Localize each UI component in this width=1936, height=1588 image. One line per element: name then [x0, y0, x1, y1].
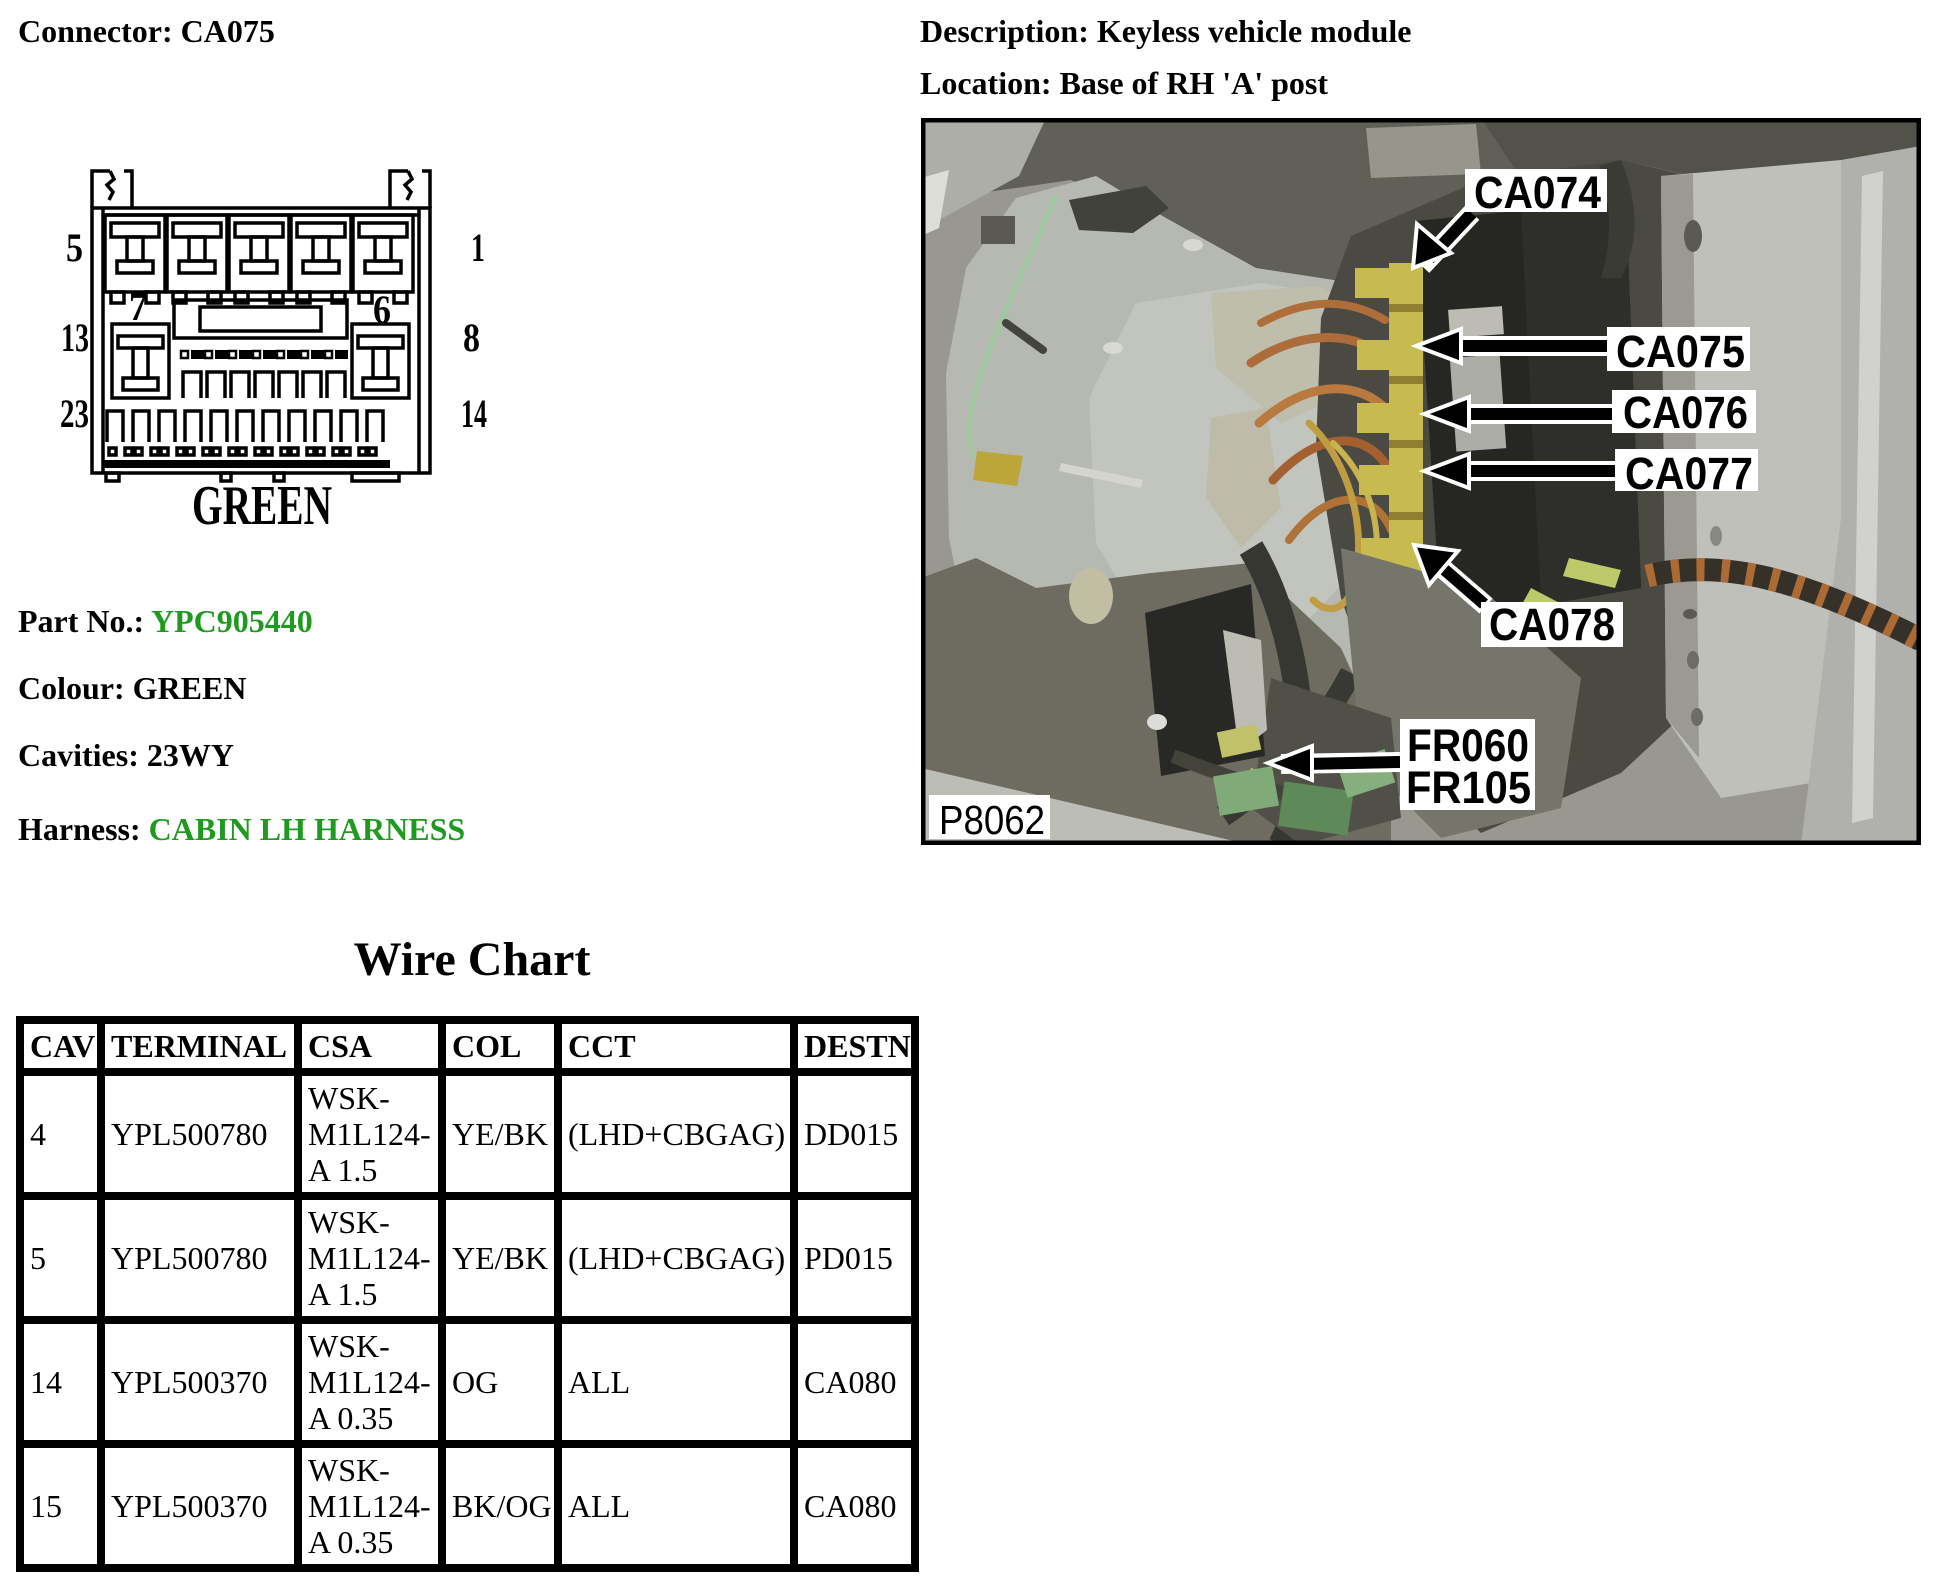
svg-text:13: 13	[61, 315, 89, 360]
svg-text:CA078: CA078	[1489, 599, 1615, 650]
svg-text:5: 5	[66, 225, 83, 270]
svg-text:CA075: CA075	[1616, 326, 1745, 377]
svg-text:14: 14	[461, 391, 487, 436]
svg-text:6: 6	[373, 287, 391, 332]
svg-text:P8062: P8062	[939, 797, 1045, 843]
svg-text:CA076: CA076	[1623, 387, 1748, 438]
svg-text:8: 8	[463, 315, 480, 360]
svg-text:23: 23	[60, 391, 89, 436]
svg-text:1: 1	[471, 225, 485, 270]
svg-text:7: 7	[129, 284, 147, 329]
svg-text:CA074: CA074	[1474, 167, 1601, 218]
svg-text:CA077: CA077	[1625, 448, 1753, 499]
svg-text:GREEN: GREEN	[192, 475, 332, 537]
svg-text:FR105: FR105	[1406, 762, 1531, 813]
